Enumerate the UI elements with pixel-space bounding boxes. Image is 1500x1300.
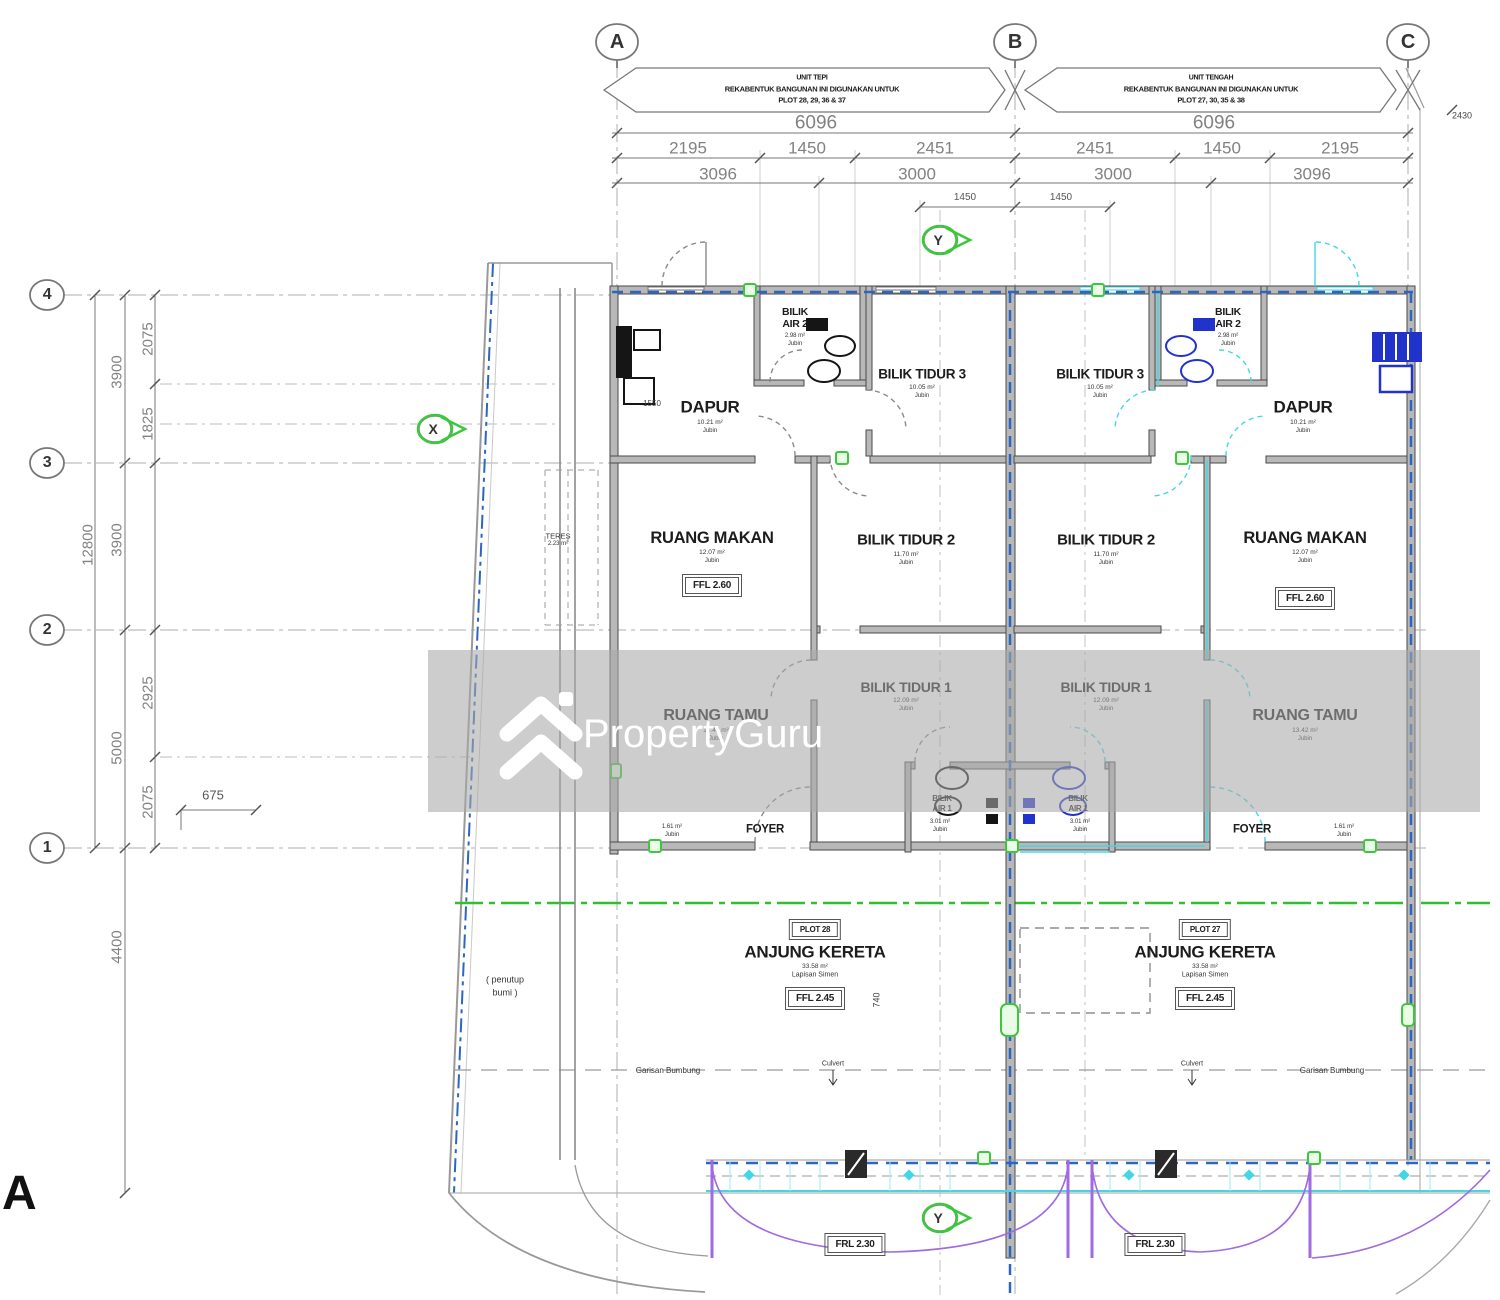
room-dapur-right-area: 10.21 m² (1290, 420, 1316, 427)
room-ruang-makan-left-finish: Jubin (705, 558, 719, 564)
dim-4400: 4400 (110, 930, 125, 963)
room-bilik-air1-right-finish: Jubin (1073, 827, 1087, 833)
dim-2925: 2925 (141, 676, 156, 709)
room-bilik-air2-right-2: AIR 2 (1215, 319, 1240, 330)
room-foyer-right-finish: Jubin (1337, 832, 1351, 838)
room-bilik-air1-right-area: 3.01 m² (1070, 819, 1090, 825)
room-ruang-makan-right-area: 12.07 m² (1292, 550, 1318, 557)
sheet-letter: A (2, 1166, 37, 1221)
dim-3096-r: 3096 (1293, 166, 1331, 183)
room-bilik-tidur3-right-finish: Jubin (1093, 393, 1107, 399)
dim-2075-b: 2075 (141, 785, 156, 818)
room-dapur-right: DAPUR (1274, 399, 1333, 416)
room-bilik-tidur2-right: BILIK TIDUR 2 (1057, 533, 1155, 548)
room-ruang-makan-right-finish: Jubin (1298, 558, 1312, 564)
frl-230-right: FRL 2.30 (1127, 1236, 1182, 1253)
dim-3000-l: 3000 (898, 166, 936, 183)
room-anjung-kereta-right: ANJUNG KERETA (1134, 944, 1275, 961)
dim-1450-l: 1450 (788, 140, 826, 157)
room-anjung-left-area: 33.58 m² (802, 964, 828, 971)
room-bilik-tidur2-left-finish: Jubin (899, 560, 913, 566)
dim-1825: 1825 (141, 407, 156, 440)
room-bilik-air1-left-area: 3.01 m² (930, 819, 950, 825)
dim-6096-left: 6096 (795, 114, 837, 133)
dim-3900-a: 3900 (110, 355, 125, 388)
note-culvert-right: Culvert (1181, 1061, 1203, 1068)
room-anjung-left-finish: Lapisan Simen (792, 972, 838, 979)
room-ruang-makan-left-area: 12.07 m² (699, 550, 725, 557)
dim-675: 675 (202, 789, 224, 802)
room-ruang-makan-left: RUANG MAKAN (650, 530, 773, 547)
dim-3096-l: 3096 (699, 166, 737, 183)
grid-row-2: 2 (43, 622, 52, 638)
teres-dashed-outline (545, 470, 598, 625)
dim-6096-right: 6096 (1193, 114, 1235, 133)
dim-3900-b: 3900 (110, 523, 125, 556)
plot-28-tag: PLOT 28 (792, 922, 838, 937)
room-bilik-air1-left-finish: Jubin (933, 827, 947, 833)
room-foyer-right-area: 1.61 m² (1334, 824, 1354, 830)
room-bilik-tidur3-left-area: 10.05 m² (909, 385, 935, 392)
ffl-260-left: FFL 2.60 (685, 577, 739, 594)
room-dapur-left: DAPUR (681, 399, 740, 416)
marker-x-label: X (428, 422, 437, 436)
room-bilik-air2-left-area: 2.98 m² (785, 333, 805, 339)
row-bubbles (30, 280, 64, 863)
grid-col-c: C (1401, 32, 1415, 52)
banner-left-line3: PLOT 28, 29, 36 & 37 (778, 96, 845, 104)
room-foyer-left: FOYER (746, 824, 784, 836)
room-foyer-left-finish: Jubin (665, 832, 679, 838)
watermark-brand-text: PropertyGuru (583, 712, 823, 757)
dim-2430: 2430 (1452, 112, 1472, 121)
room-bilik-air2-left-1: BILIK (782, 307, 808, 318)
gate-swing-arcs (575, 1160, 1490, 1258)
room-bilik-air2-left-finish: Jubin (788, 341, 802, 347)
dim-2195-l: 2195 (669, 140, 707, 157)
ffl-260-right: FFL 2.60 (1278, 590, 1332, 607)
dim-740: 740 (873, 992, 882, 1007)
banner-right-line1: UNIT TENGAH (1189, 75, 1234, 82)
marker-y-top-label: Y (933, 233, 942, 247)
dim-1550: 1550 (643, 400, 661, 408)
room-foyer-left-area: 1.61 m² (662, 824, 682, 830)
grid-col-a: A (610, 32, 624, 52)
room-ruang-makan-right: RUANG MAKAN (1243, 530, 1366, 547)
dim-1450-c-l: 1450 (954, 193, 976, 203)
room-bilik-tidur2-right-area: 11.70 m² (1093, 552, 1118, 559)
marker-x-eye (418, 415, 465, 443)
grid-row-1: 1 (43, 840, 52, 856)
room-bilik-tidur2-left: BILIK TIDUR 2 (857, 533, 955, 548)
dim-2075-a: 2075 (141, 322, 156, 355)
marker-y-top-eye (923, 226, 970, 254)
note-penutup-1: ( penutup (486, 976, 524, 985)
dim-2195-r: 2195 (1321, 140, 1359, 157)
room-anjung-kereta-left: ANJUNG KERETA (744, 944, 885, 961)
banner-right-line3: PLOT 27, 30, 35 & 38 (1177, 96, 1244, 104)
banner-right-line2: REKABENTUK BANGUNAN INI DIGUNAKAN UNTUK (1124, 85, 1299, 93)
room-bilik-air2-right-finish: Jubin (1221, 341, 1235, 347)
dim-5000: 5000 (110, 731, 125, 764)
propertyguru-logo-icon (495, 682, 587, 792)
note-culvert-left: Culvert (822, 1061, 844, 1068)
room-bilik-tidur2-left-area: 11.70 m² (893, 552, 918, 559)
ffl-245-right: FFL 2.45 (1178, 990, 1232, 1007)
dim-2451-r: 2451 (1076, 140, 1114, 157)
dim-1450-c-r: 1450 (1050, 193, 1072, 203)
room-bilik-tidur3-right: BILIK TIDUR 3 (1056, 367, 1144, 381)
frl-230-left: FRL 2.30 (827, 1236, 882, 1253)
room-bilik-air2-right-1: BILIK (1215, 307, 1241, 318)
room-bilik-tidur3-left: BILIK TIDUR 3 (878, 367, 966, 381)
note-garisan-left: Garisan Bumbung (636, 1067, 700, 1075)
room-bilik-air2-right-area: 2.98 m² (1218, 333, 1238, 339)
room-bilik-air2-left-2: AIR 2 (782, 319, 807, 330)
plot-27-tag: PLOT 27 (1182, 922, 1228, 937)
note-garisan-right: Garisan Bumbung (1300, 1067, 1364, 1075)
grid-row-4: 4 (43, 287, 52, 303)
grid-row-3: 3 (43, 455, 52, 471)
room-bilik-tidur2-right-finish: Jubin (1099, 560, 1113, 566)
grid-col-b: B (1008, 32, 1022, 52)
room-anjung-right-finish: Lapisan Simen (1182, 972, 1228, 979)
room-dapur-right-finish: Jubin (1296, 428, 1310, 434)
front-fence (706, 1160, 1490, 1191)
note-teres: TERES (545, 532, 570, 540)
dim-2451-l: 2451 (916, 140, 954, 157)
banner-left-line1: UNIT TEPI (796, 75, 827, 82)
marker-y-bottom-label: Y (933, 1211, 942, 1225)
ffl-245-left: FFL 2.45 (788, 990, 842, 1007)
banner-left-line2: REKABENTUK BANGUNAN INI DIGUNAKAN UNTUK (725, 85, 900, 93)
dim-12800: 12800 (81, 524, 96, 566)
room-dapur-left-area: 10.21 m² (697, 420, 723, 427)
room-bilik-tidur3-left-finish: Jubin (915, 393, 929, 399)
dim-3000-r: 3000 (1094, 166, 1132, 183)
room-bilik-tidur3-right-area: 10.05 m² (1087, 385, 1113, 392)
note-penutup-2: bumi ) (492, 989, 517, 998)
room-foyer-right: FOYER (1233, 824, 1271, 836)
marker-y-bottom-eye (923, 1204, 970, 1232)
room-dapur-left-finish: Jubin (703, 428, 717, 434)
note-teres-area: 2.23 m² (548, 541, 568, 547)
room-anjung-right-area: 33.58 m² (1192, 964, 1218, 971)
dim-1450-r: 1450 (1203, 140, 1241, 157)
floor-plan-sheet: A B C 4 3 2 1 UNIT TEPI REKABENTUK BANGU… (0, 0, 1500, 1300)
